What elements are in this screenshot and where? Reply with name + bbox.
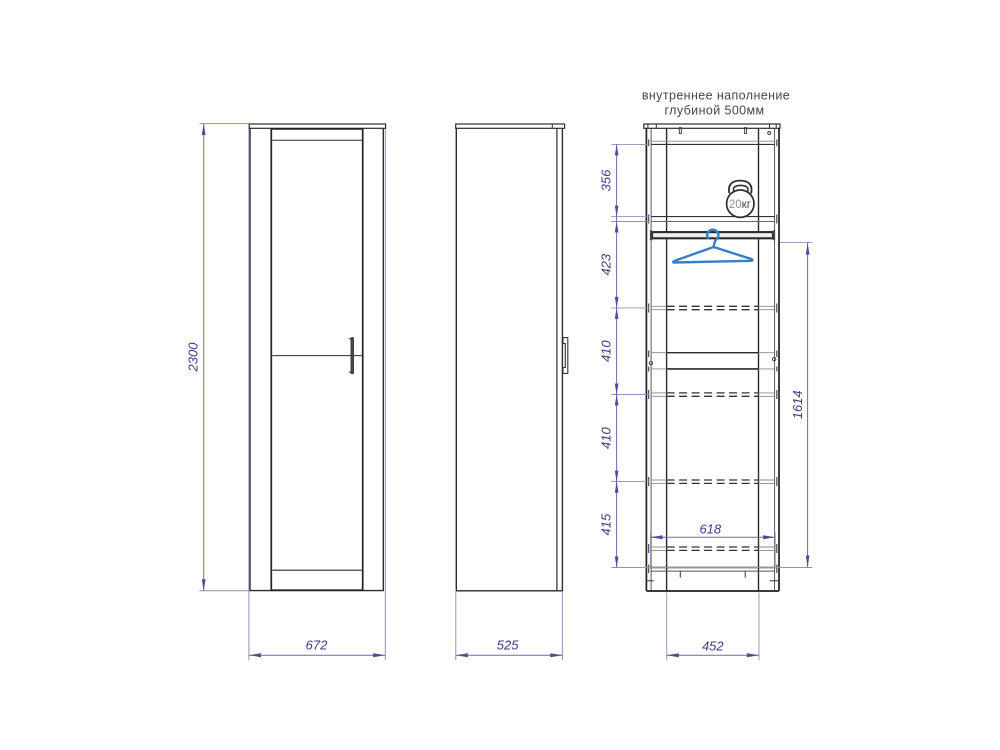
svg-text:423: 423 bbox=[598, 253, 613, 275]
svg-text:20кг: 20кг bbox=[729, 199, 751, 211]
svg-text:618: 618 bbox=[699, 522, 721, 537]
svg-text:356: 356 bbox=[598, 169, 613, 191]
svg-text:глубиной 500мм: глубиной 500мм bbox=[664, 104, 764, 118]
svg-text:410: 410 bbox=[598, 426, 613, 448]
svg-text:1614: 1614 bbox=[790, 390, 805, 419]
svg-text:2300: 2300 bbox=[186, 342, 201, 373]
svg-text:410: 410 bbox=[598, 340, 613, 362]
svg-text:452: 452 bbox=[702, 639, 724, 654]
svg-text:525: 525 bbox=[497, 638, 519, 653]
svg-text:внутреннее наполнение: внутреннее наполнение bbox=[642, 89, 790, 103]
svg-text:415: 415 bbox=[598, 513, 613, 535]
svg-text:672: 672 bbox=[306, 638, 328, 653]
